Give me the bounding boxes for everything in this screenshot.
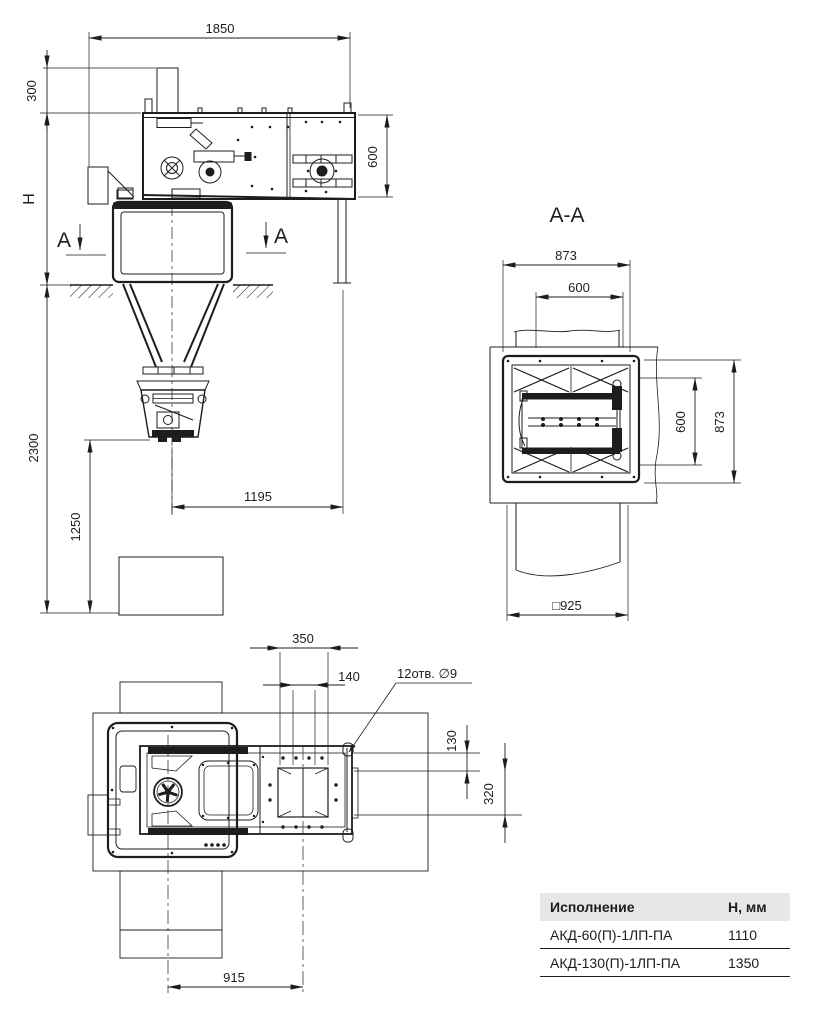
dim-opening-width-label: 600 xyxy=(568,280,590,295)
dim-center-distance-label: 915 xyxy=(223,970,245,985)
embedded-frame xyxy=(503,356,639,482)
holes-callout-label: 12отв. ∅9 xyxy=(397,666,457,681)
roller-assembly xyxy=(519,380,622,460)
machine-body xyxy=(117,99,355,199)
break-curve xyxy=(516,562,620,576)
dim-frame-width: 873 xyxy=(503,248,630,352)
elevation-view: 1850 300 H 2300 xyxy=(21,21,393,615)
dim-pit-depth-label: 2300 xyxy=(26,434,41,463)
storage-bin xyxy=(119,557,223,615)
dim-discharge-clearance-label: 1250 xyxy=(68,513,83,542)
pneumatic-internals xyxy=(157,119,341,194)
dim-body-height: 600 xyxy=(358,115,393,197)
dim-height-h-label: H xyxy=(21,193,38,205)
technical-drawing: 1850 300 H 2300 xyxy=(0,0,819,1024)
spec-table-header: Исполнение Н, мм xyxy=(540,893,790,921)
spec-table: Исполнение Н, мм АКД-60(П)-1ЛП-ПА 1110 А… xyxy=(540,893,790,977)
dim-flange-span: 350 xyxy=(250,631,358,765)
machine-body-plan xyxy=(88,743,358,842)
dim-inlet-height: 300 xyxy=(24,50,156,131)
spec-height-value: 1350 xyxy=(728,955,790,971)
spec-header-model: Исполнение xyxy=(540,899,728,915)
plan-view: 350 140 12отв. ∅9 xyxy=(88,631,522,993)
dim-slab-opening-label: □925 xyxy=(552,598,582,613)
section-mark-right: A xyxy=(246,222,288,253)
dim-height-h: H xyxy=(21,113,72,285)
side-bracket xyxy=(88,167,134,204)
dim-inlet-height-label: 300 xyxy=(24,80,39,102)
inlet-stub xyxy=(157,68,178,113)
discharge-valve xyxy=(137,381,209,442)
dim-slab-opening: □925 xyxy=(507,505,628,621)
dim-center-distance: 915 xyxy=(168,970,303,987)
section-aa-view: A-A xyxy=(490,204,741,621)
top-duct xyxy=(514,330,620,347)
dim-overall-width: 1850 xyxy=(89,21,350,166)
drawing-page: 1850 300 H 2300 xyxy=(0,0,819,1024)
duct-bottom xyxy=(120,871,222,958)
drive-compartment xyxy=(287,113,352,199)
dim-frame-width-label: 873 xyxy=(555,248,577,263)
dim-discharge-offset-label: 1195 xyxy=(244,489,272,504)
hopper-frame-plan xyxy=(108,723,248,857)
dim-opening-width: 600 xyxy=(536,280,623,348)
support-leg xyxy=(333,199,351,283)
dim-outlet-width-label: 140 xyxy=(338,669,360,684)
section-mark-left-label: A xyxy=(57,229,71,252)
duct-top xyxy=(120,682,222,713)
spec-table-row: АКД-130(П)-1ЛП-ПА 1350 xyxy=(540,949,790,977)
dim-opening-height: 600 xyxy=(638,378,702,465)
spec-header-height: Н, мм xyxy=(728,899,790,915)
section-title: A-A xyxy=(549,204,584,227)
side-panel xyxy=(120,766,136,792)
vent-holes xyxy=(204,843,226,847)
dim-overall-width-label: 1850 xyxy=(206,21,235,36)
spec-height-value: 1110 xyxy=(728,927,790,943)
x-bracing-top xyxy=(514,366,628,393)
dim-frame-height: 873 xyxy=(644,360,741,483)
funnel xyxy=(123,284,224,374)
concrete-slab xyxy=(490,347,659,503)
section-mark-right-label: A xyxy=(274,225,288,248)
section-mark-left: A xyxy=(57,224,106,255)
elevation-dimensions: 1850 300 H 2300 xyxy=(21,21,393,613)
dim-flange-span-label: 350 xyxy=(292,631,314,646)
dim-body-height-label: 600 xyxy=(365,146,380,168)
dim-discharge-clearance: 1250 xyxy=(68,440,150,613)
side-bracket-plan xyxy=(88,795,108,835)
spec-model-value: АКД-60(П)-1ЛП-ПА xyxy=(540,927,728,943)
lower-duct xyxy=(516,503,620,576)
dim-row-offset: 130 xyxy=(354,725,480,799)
dim-row-offset-label: 130 xyxy=(444,730,459,752)
hopper-box xyxy=(113,202,232,282)
break-line xyxy=(655,347,659,503)
dim-discharge-offset: 1195 xyxy=(172,290,343,514)
spec-table-row: АКД-60(П)-1ЛП-ПА 1110 xyxy=(540,921,790,949)
dim-outlet-length-label: 320 xyxy=(481,783,496,805)
dim-opening-height-label: 600 xyxy=(673,411,688,433)
dim-pit-depth: 2300 xyxy=(26,285,119,613)
dim-outlet-length: 320 xyxy=(354,743,522,843)
spec-model-value: АКД-130(П)-1ЛП-ПА xyxy=(540,955,728,971)
ground-hatch xyxy=(70,285,273,298)
dim-frame-height-label: 873 xyxy=(712,411,727,433)
dim-outlet-width: 140 xyxy=(263,669,360,765)
